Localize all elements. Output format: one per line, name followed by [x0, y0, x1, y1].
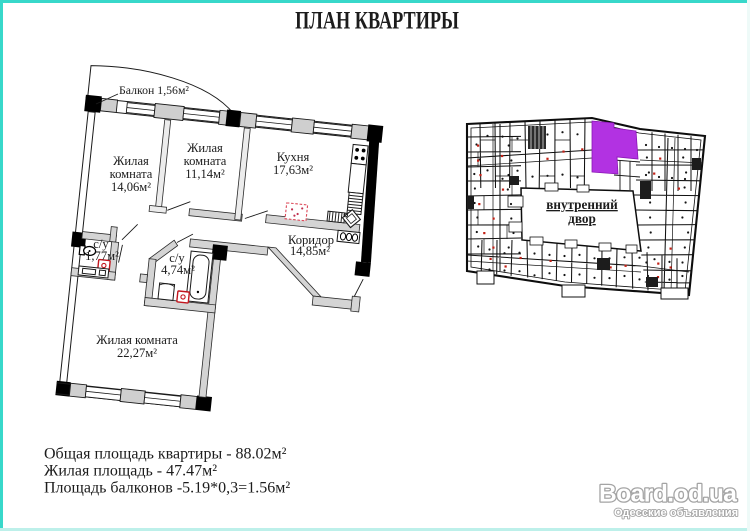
svg-text:комната: комната: [184, 154, 227, 168]
svg-text:Одесские объявления: Одесские объявления: [614, 507, 738, 519]
svg-text:1,77м²: 1,77м²: [85, 249, 119, 263]
svg-text:внутренний: внутренний: [546, 197, 618, 212]
svg-text:Жилая площадь - 47.47м²: Жилая площадь - 47.47м²: [44, 463, 217, 480]
svg-text:4,74м²: 4,74м²: [161, 263, 195, 277]
svg-text:17,63м²: 17,63м²: [273, 163, 313, 177]
svg-text:Кухня: Кухня: [277, 150, 310, 164]
svg-text:11,14м²: 11,14м²: [185, 167, 225, 181]
svg-text:комната: комната: [110, 167, 153, 181]
svg-text:22,27м²: 22,27м²: [117, 346, 157, 360]
svg-text:14,85м²: 14,85м²: [290, 244, 330, 258]
svg-text:ПЛАН КВАРТИРЫ: ПЛАН КВАРТИРЫ: [295, 7, 459, 34]
svg-text:Общая площадь квартиры - 88.02: Общая площадь квартиры - 88.02м²: [44, 446, 287, 463]
svg-text:двор: двор: [568, 211, 596, 226]
svg-text:Балкон 1,56м²: Балкон 1,56м²: [119, 83, 189, 97]
svg-text:14,06м²: 14,06м²: [111, 180, 151, 194]
svg-text:Board.od.ua: Board.od.ua: [599, 481, 737, 508]
svg-text:Площадь балконов -5.19*0,3=1.5: Площадь балконов -5.19*0,3=1.56м²: [44, 480, 290, 497]
svg-text:Жилая: Жилая: [113, 154, 149, 168]
svg-text:Жилая комната: Жилая комната: [96, 333, 178, 347]
svg-text:Жилая: Жилая: [187, 141, 223, 155]
